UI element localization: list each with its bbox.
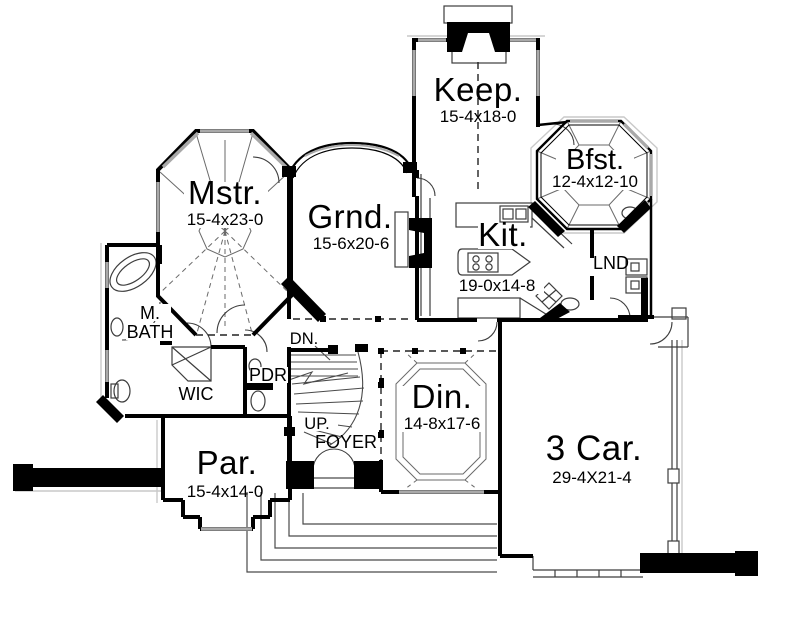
room-label-car: 3 Car. — [546, 429, 642, 468]
room-label-foyer: FOYER — [315, 432, 377, 452]
room-label-din: Din. — [412, 378, 473, 415]
stair-label-up: UP. — [304, 415, 329, 433]
tub-icon — [103, 245, 163, 299]
room-dims-mstr: 15-4x23-0 — [187, 210, 264, 229]
room-label-pdr: PDR — [249, 365, 287, 385]
keep-hearth — [452, 51, 506, 63]
room-dims-bfst: 12-4x12-10 — [552, 172, 638, 191]
room-label-wic: WIC — [179, 384, 214, 404]
room-label-kit: Kit. — [478, 216, 528, 253]
room-labels: Keep. 15-4x18-0 Bfst. 12-4x12-10 Mstr. 1… — [127, 71, 643, 501]
room-label-lnd: LND — [593, 253, 629, 273]
sink-icon — [111, 318, 123, 336]
room-label-mstr: Mstr. — [188, 174, 262, 211]
pdr-toilet-icon — [251, 391, 265, 411]
garage-side-window — [668, 469, 679, 483]
room-label-mbath-1: M. — [140, 303, 160, 323]
entry-pier — [354, 461, 382, 489]
room-label-mbath-2: BATH — [127, 322, 174, 342]
room-dims-grnd: 15-6x20-6 — [313, 234, 390, 253]
shower-icon — [172, 347, 211, 381]
garage-right-wall — [672, 340, 677, 553]
room-dims-din: 14-8x17-6 — [404, 414, 481, 433]
room-label-grnd: Grnd. — [307, 198, 392, 235]
room-dims-car: 29-4X21-4 — [552, 468, 631, 487]
room-dims-par: 15-4x14-0 — [187, 482, 264, 501]
grand-hearth — [395, 212, 408, 267]
room-label-par: Par. — [197, 444, 258, 481]
floor-plan-drawing: Keep. 15-4x18-0 Bfst. 12-4x12-10 Mstr. 1… — [0, 0, 800, 640]
toilet-icon — [111, 380, 130, 402]
floor-plan: Keep. 15-4x18-0 Bfst. 12-4x12-10 Mstr. 1… — [0, 0, 800, 640]
room-dims-keep: 15-4x18-0 — [440, 107, 517, 126]
garage-door — [533, 556, 643, 577]
left-wall-bar — [15, 468, 163, 487]
right-wall-bar — [640, 553, 739, 573]
room-dims-kit: 19-0x14-8 — [459, 276, 536, 295]
cooktop-icon — [468, 253, 498, 272]
kitchen-counter-lower — [458, 298, 520, 318]
keep-chimney — [444, 6, 512, 23]
stair-label-dn: DN. — [290, 330, 318, 348]
garage-side-window — [668, 541, 679, 555]
room-label-keep: Keep. — [434, 71, 523, 108]
